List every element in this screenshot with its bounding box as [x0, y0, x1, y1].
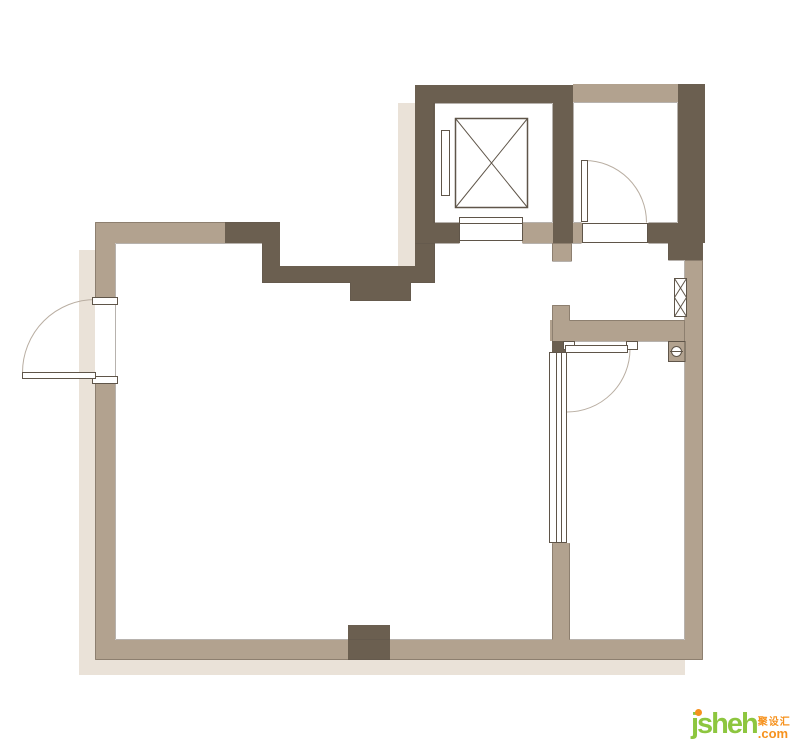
wall-dark-band — [262, 266, 435, 283]
elevator-wall-bottom-left — [415, 223, 460, 243]
sliding-glass-panel — [550, 353, 567, 543]
right-room-door-jamb-right — [627, 342, 638, 350]
jsheh-logo: jsheh聚设汇.com — [691, 705, 799, 745]
shadow-left-band — [79, 250, 95, 675]
right-room-swing-door — [564, 342, 638, 413]
entry-swing-door — [23, 298, 118, 384]
wall-top-right-room-top — [573, 84, 678, 102]
wall-band-right-of-sill — [522, 223, 582, 243]
floor-plan: jsheh聚设汇.com — [0, 0, 800, 746]
floor-drain-symbol — [669, 342, 686, 362]
wall-dark-step-down — [262, 243, 280, 266]
logo-j-dot-icon — [695, 709, 702, 716]
wall-right-room-top — [550, 320, 703, 341]
top-right-room-swing-door — [582, 161, 648, 243]
wall-stub-above-right-room — [552, 305, 570, 320]
wall-bottom — [95, 640, 703, 660]
wall-dark-stub-below-band — [350, 283, 411, 301]
wall-left-upper — [95, 222, 115, 303]
wall-stub-below-shaft — [552, 243, 572, 261]
right-room-door-arc — [567, 349, 630, 412]
top-right-door-arc — [585, 161, 647, 223]
right-room-door-leaf — [566, 346, 628, 353]
wall-dark-top-step — [225, 222, 280, 243]
wall-dark-top-right-corner — [678, 84, 705, 243]
elevator-door-sill — [460, 218, 523, 241]
wall-divider-lower — [552, 543, 570, 643]
wall-dark-corner-step-a — [648, 223, 678, 243]
elevator-cab-cross — [456, 119, 528, 208]
floor-drain-box — [669, 342, 686, 362]
wall-left-lower — [95, 380, 115, 660]
top-right-door-sill — [583, 224, 648, 243]
elevator-cab — [456, 119, 528, 208]
top-right-door-leaf — [582, 161, 588, 222]
wall-dark-bottom-stub — [348, 625, 390, 660]
wall-dark-corner-step-b — [668, 243, 703, 260]
wall-right — [685, 260, 703, 642]
elevator-wall-top — [415, 85, 573, 103]
sliding-panel-frame — [550, 353, 567, 543]
sliding-panel-tracks — [557, 353, 562, 543]
elevator-wall-right — [553, 103, 573, 243]
floor-drain-circle — [672, 347, 682, 357]
shadow-bottom-band — [79, 658, 685, 675]
elevator-wall-left — [415, 85, 435, 283]
wall-dark-divider-block — [552, 341, 570, 352]
elevator-counterweight — [442, 131, 450, 196]
logo-com-text: .com — [758, 728, 791, 740]
